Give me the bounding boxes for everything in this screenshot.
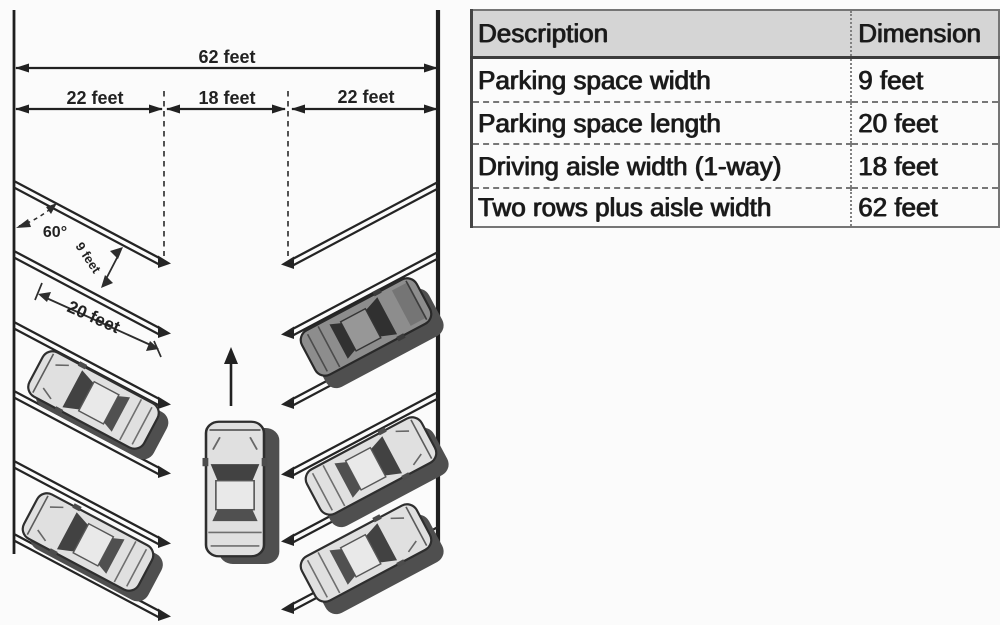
svg-text:62 feet: 62 feet [198,47,255,67]
svg-text:22 feet: 22 feet [66,88,123,108]
svg-text:60°: 60° [43,224,67,241]
svg-text:9 feet: 9 feet [73,239,105,276]
svg-text:22 feet: 22 feet [337,87,394,107]
svg-text:20 feet: 20 feet [64,296,123,337]
svg-text:18 feet: 18 feet [198,88,255,108]
